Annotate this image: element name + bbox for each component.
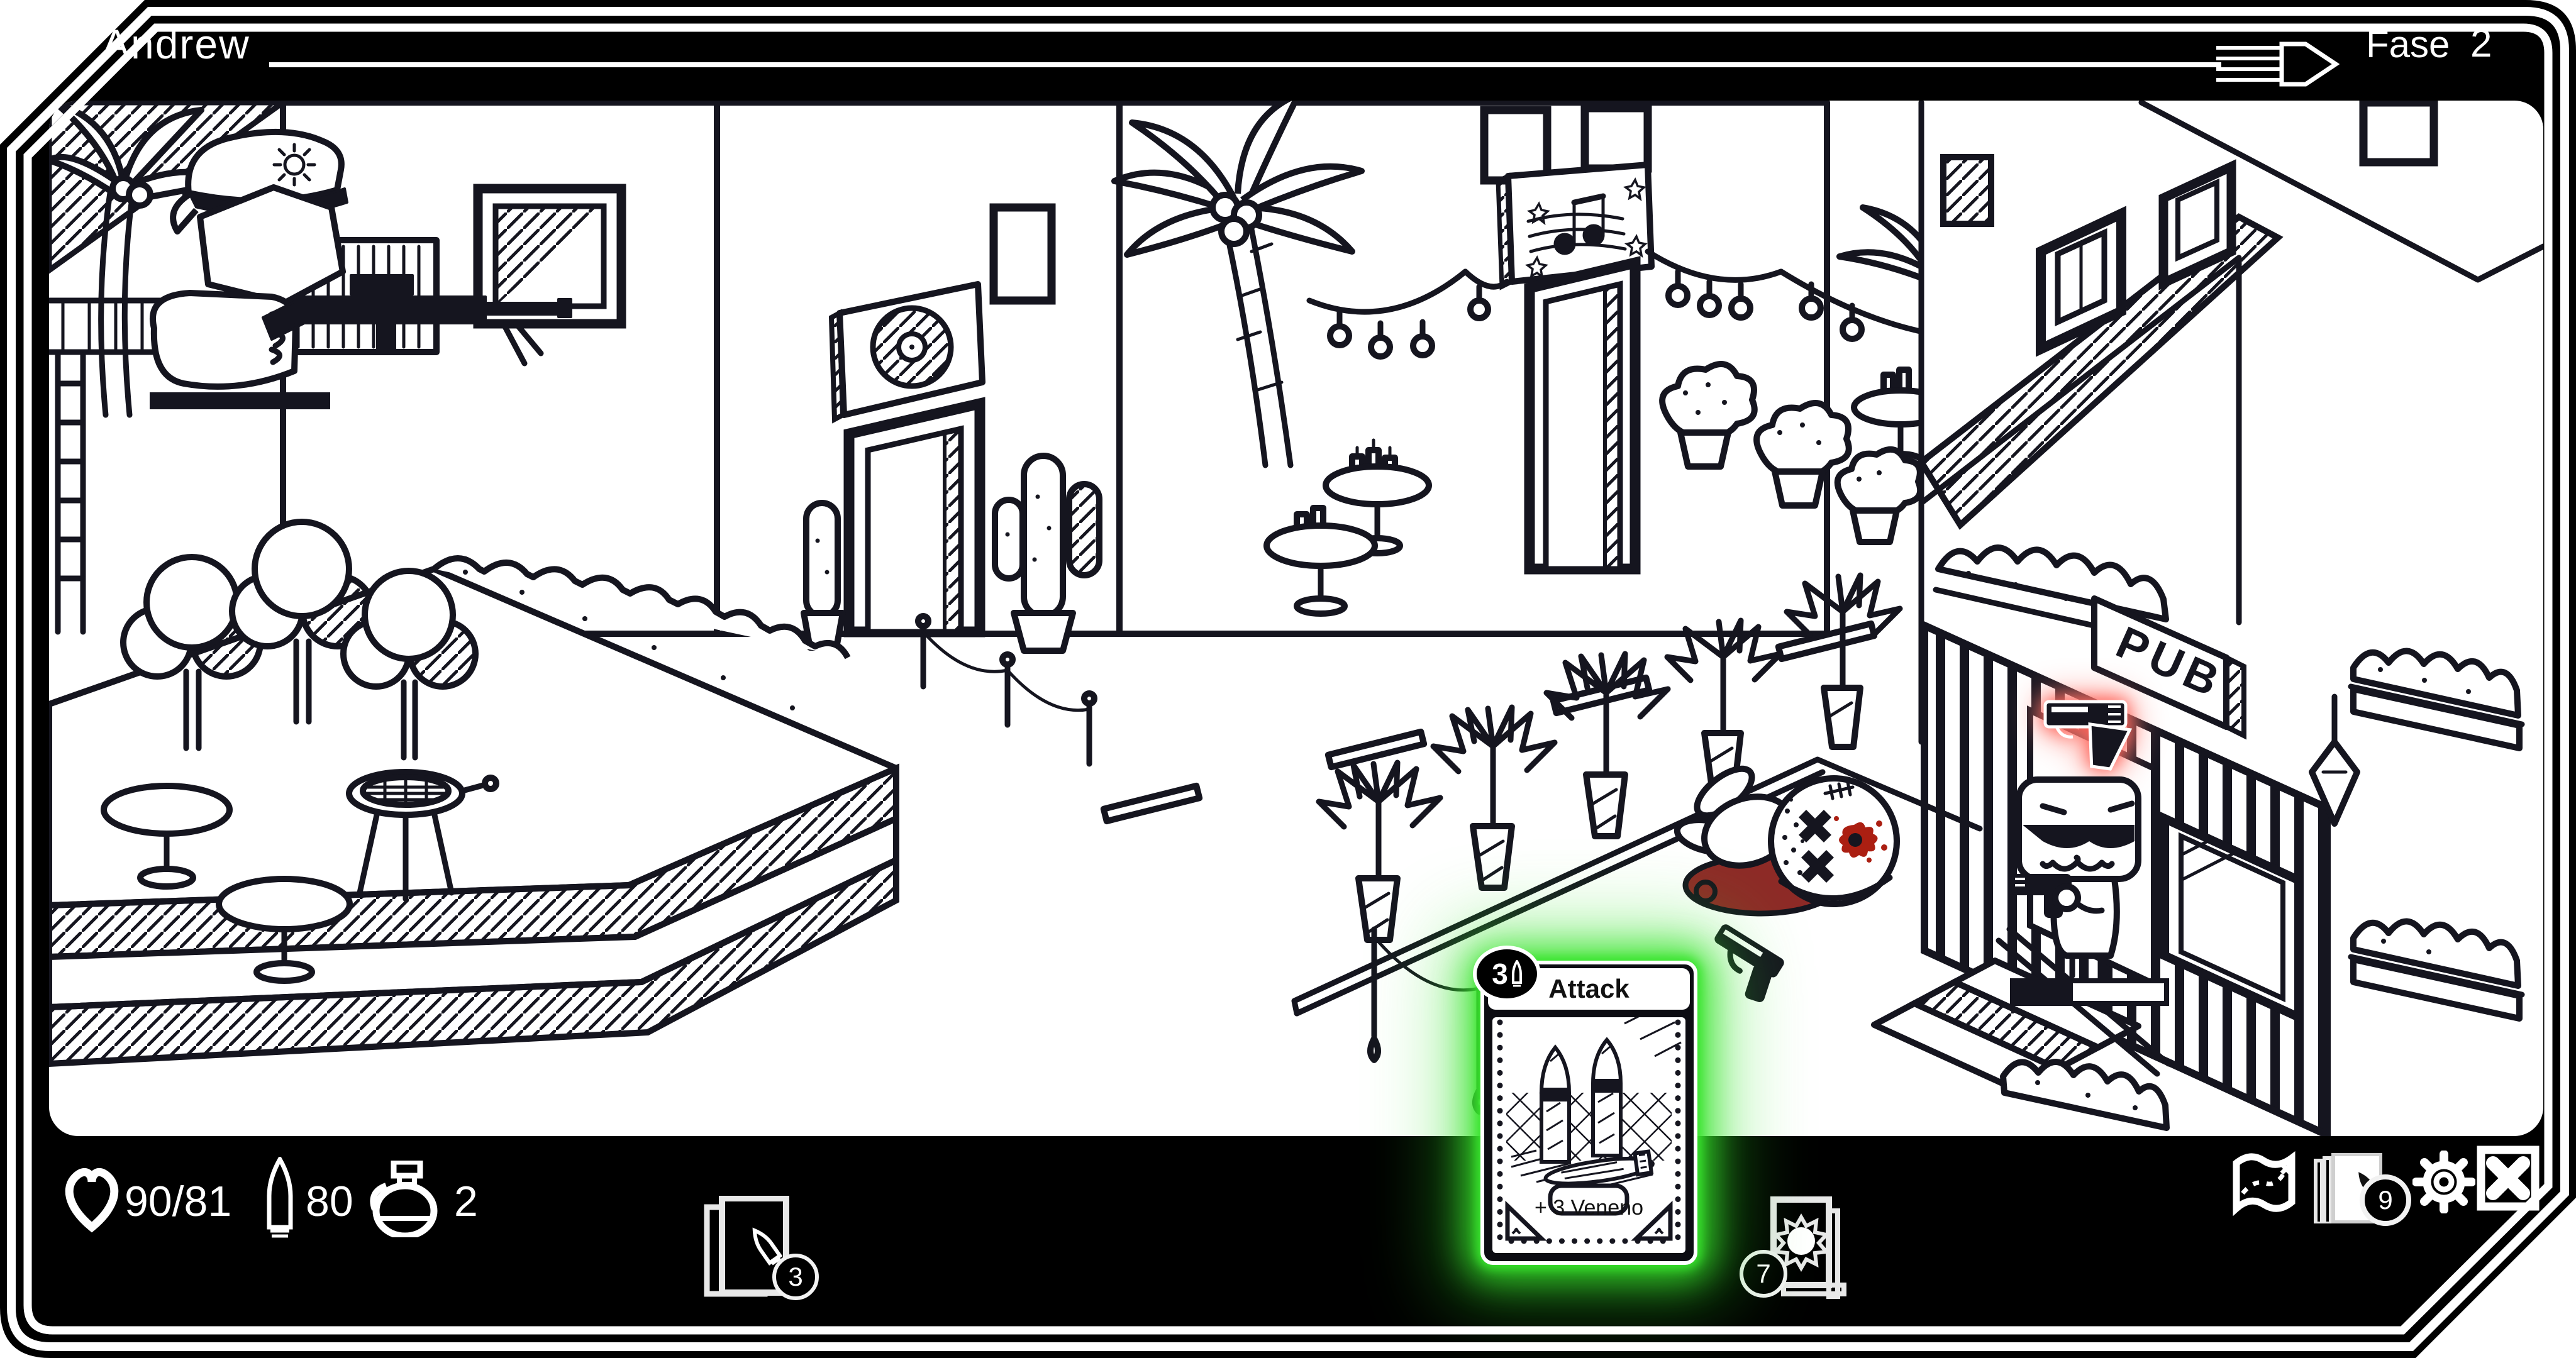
draw-pile-count[interactable]: 3 — [772, 1254, 819, 1300]
card-cost-badge: 3 — [1473, 946, 1541, 1002]
card-effect: + 3 Veneno — [1492, 1196, 1685, 1220]
ammo-icon — [267, 1157, 294, 1242]
map-button[interactable] — [2231, 1147, 2296, 1221]
grenade-value: 2 — [454, 1177, 478, 1226]
ammo-value: 80 — [306, 1177, 353, 1226]
player-health-bar — [150, 392, 330, 409]
close-button[interactable] — [2477, 1145, 2540, 1211]
card-attack[interactable]: 3 Attack — [1480, 961, 1697, 1265]
discard-pile-count[interactable]: 7 — [1740, 1250, 1787, 1298]
cactus-small — [804, 503, 843, 648]
game-screen: .ln{fill:none;stroke:#15151f;stroke-widt… — [0, 0, 2576, 1358]
grenade-icon — [364, 1161, 438, 1237]
town-scene: .ln{fill:none;stroke:#15151f;stroke-widt… — [49, 101, 2543, 1136]
phase-progress-line — [269, 62, 2221, 67]
settings-button[interactable] — [2412, 1151, 2475, 1213]
player-name: Andrew — [102, 20, 250, 68]
pub-bush-row-lower — [2003, 1062, 2167, 1128]
ladder — [58, 355, 83, 632]
phase-number: 2 — [2470, 21, 2492, 66]
enemy-health-bar — [2012, 981, 2167, 1003]
bullet-cost-icon — [1512, 960, 1522, 988]
building-record-shop — [717, 102, 1119, 651]
phase-label: Fase — [2366, 23, 2450, 66]
pub-building: PUB — [1874, 102, 2543, 1135]
phase-progress-arrow-icon — [2216, 39, 2340, 91]
pub-window-boxes — [2351, 651, 2522, 1018]
hand-cards-count[interactable]: 9 — [2360, 1174, 2411, 1226]
health-value: 90/81 — [125, 1177, 231, 1226]
health-icon — [63, 1162, 121, 1234]
card-art: + 3 Veneno — [1492, 1017, 1685, 1253]
dropped-gun-icon — [1698, 924, 1787, 1005]
scene-art: .ln{fill:none;stroke:#15151f;stroke-widt… — [49, 101, 2543, 1136]
enemy-dead — [1674, 760, 1897, 1005]
